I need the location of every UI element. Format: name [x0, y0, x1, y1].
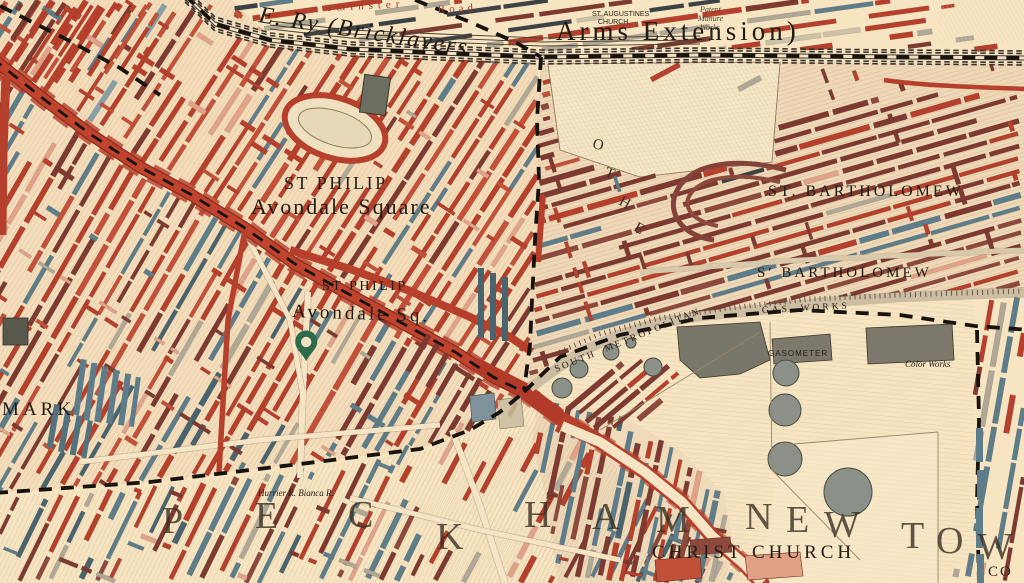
- svg-text:GASOMETER: GASOMETER: [768, 349, 828, 358]
- svg-text:Manure: Manure: [697, 14, 723, 23]
- svg-text:A: A: [592, 496, 620, 538]
- svg-text:Road: Road: [438, 2, 478, 16]
- svg-text:O: O: [936, 520, 963, 562]
- svg-text:Color Works: Color Works: [905, 359, 951, 369]
- svg-text:Avondale Square: Avondale Square: [251, 194, 432, 219]
- svg-text:Arms Extension): Arms Extension): [556, 16, 800, 46]
- svg-text:H: H: [524, 494, 551, 536]
- svg-text:E: E: [255, 495, 278, 537]
- svg-text:S′ BARTHOLOMEW: S′ BARTHOLOMEW: [757, 265, 932, 281]
- svg-text:N: N: [745, 496, 772, 538]
- svg-text:M: M: [656, 499, 690, 541]
- svg-text:E: E: [786, 499, 809, 541]
- svg-text:K: K: [436, 516, 464, 558]
- svg-text:C: C: [348, 494, 373, 536]
- svg-text:T: T: [901, 515, 924, 557]
- svg-text:ST PHILIP: ST PHILIP: [322, 279, 408, 294]
- svg-text:CHURCH: CHURCH: [598, 19, 628, 26]
- svg-text:ST PHILIP: ST PHILIP: [284, 173, 388, 193]
- svg-text:P: P: [162, 500, 183, 542]
- svg-text:W: W: [977, 526, 1013, 568]
- svg-text:Works: Works: [700, 23, 720, 32]
- svg-text:W: W: [824, 504, 860, 546]
- svg-text:MARK: MARK: [2, 399, 75, 420]
- svg-text:Patent: Patent: [699, 5, 722, 14]
- svg-text:ST. AUGUSTINES: ST. AUGUSTINES: [592, 11, 650, 18]
- svg-text:ST. BARTHOLOMEW: ST. BARTHOLOMEW: [768, 183, 964, 200]
